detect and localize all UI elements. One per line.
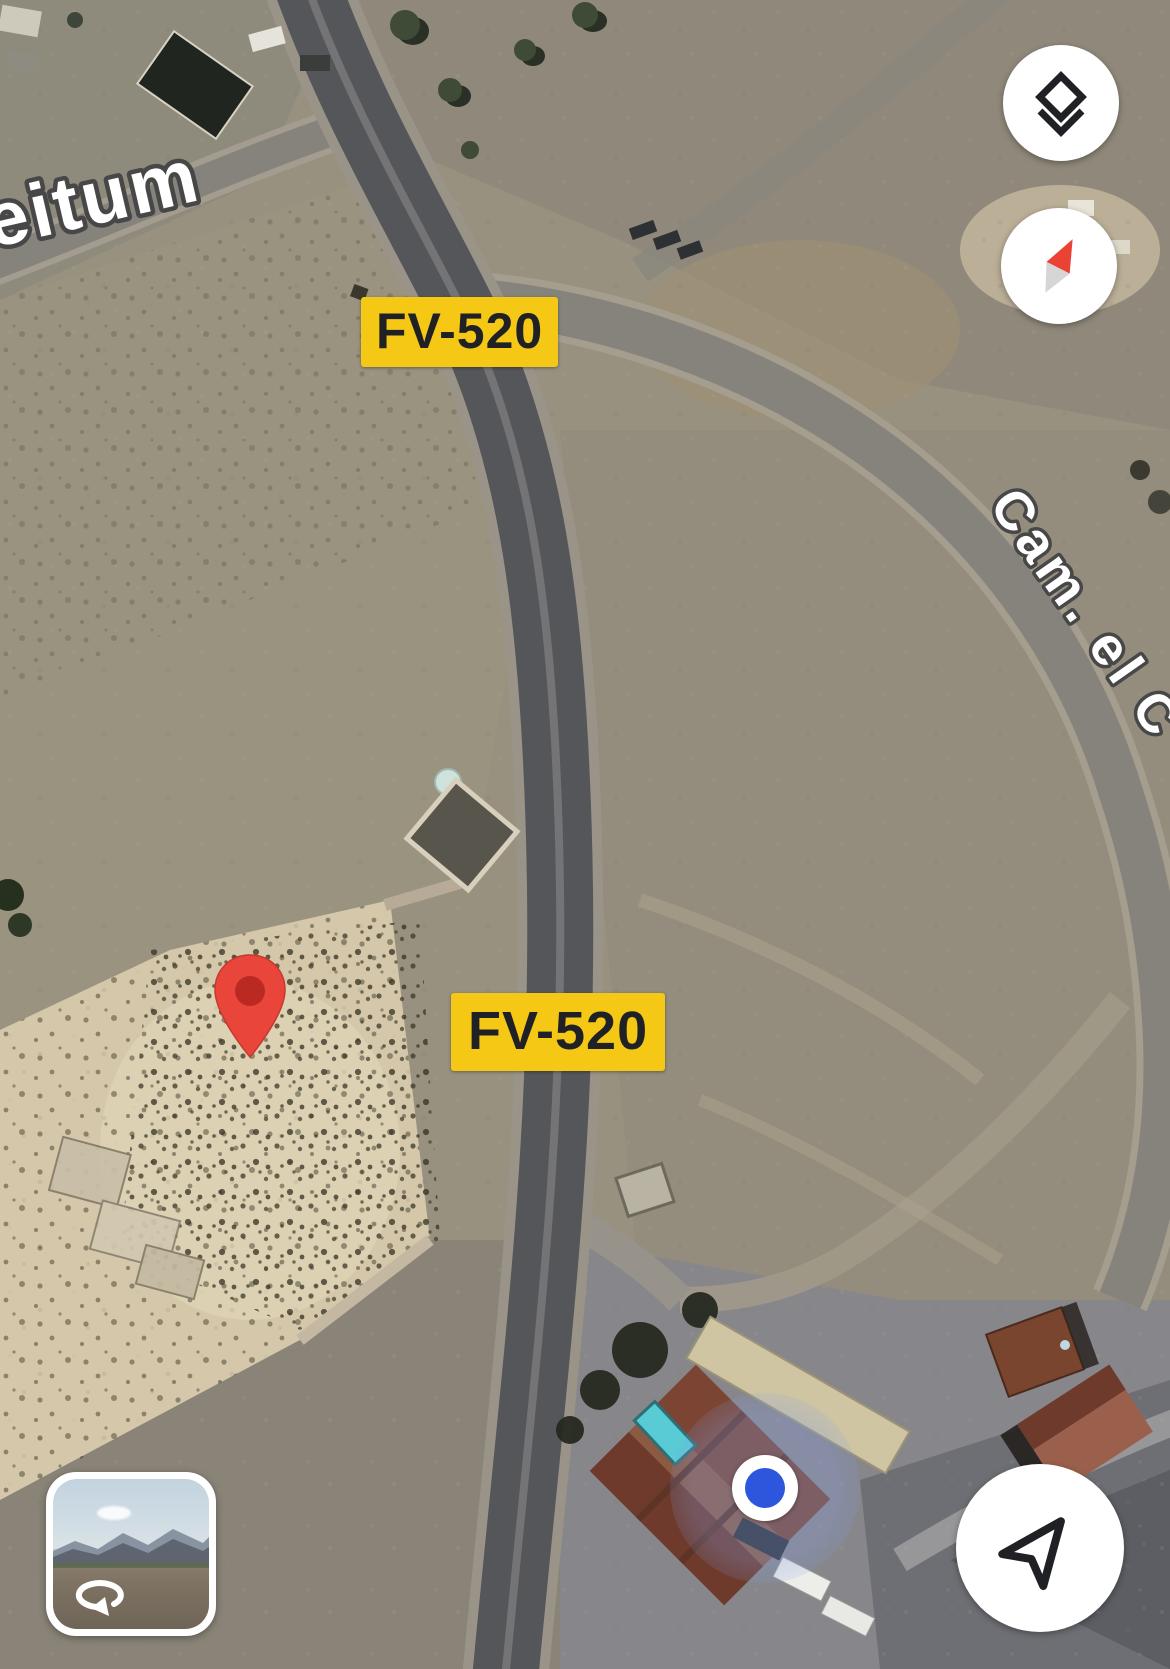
compass-button[interactable] [1001,208,1117,324]
layers-button[interactable] [1003,45,1119,161]
street-view-preview[interactable] [46,1472,216,1636]
navigate-arrow-icon [985,1493,1095,1603]
road-badge-fv520-top[interactable]: FV-520 [361,297,558,367]
layers-icon [1025,67,1097,139]
navigate-button[interactable] [956,1464,1124,1632]
map-pin-inner-dot [235,976,265,1006]
rotate-360-icon [69,1575,125,1617]
road-badge-fv520-middle[interactable]: FV-520 [451,993,665,1071]
destination-pin[interactable] [212,953,288,1059]
location-dot-icon [745,1468,785,1508]
compass-needle-icon [1023,230,1095,302]
satellite-imagery: eitum Cam. el C [0,0,1170,1669]
map-canvas[interactable]: eitum Cam. el C FV-520 FV-520 [0,0,1170,1669]
current-location-dot[interactable] [732,1455,798,1521]
street-view-photo [53,1479,209,1629]
